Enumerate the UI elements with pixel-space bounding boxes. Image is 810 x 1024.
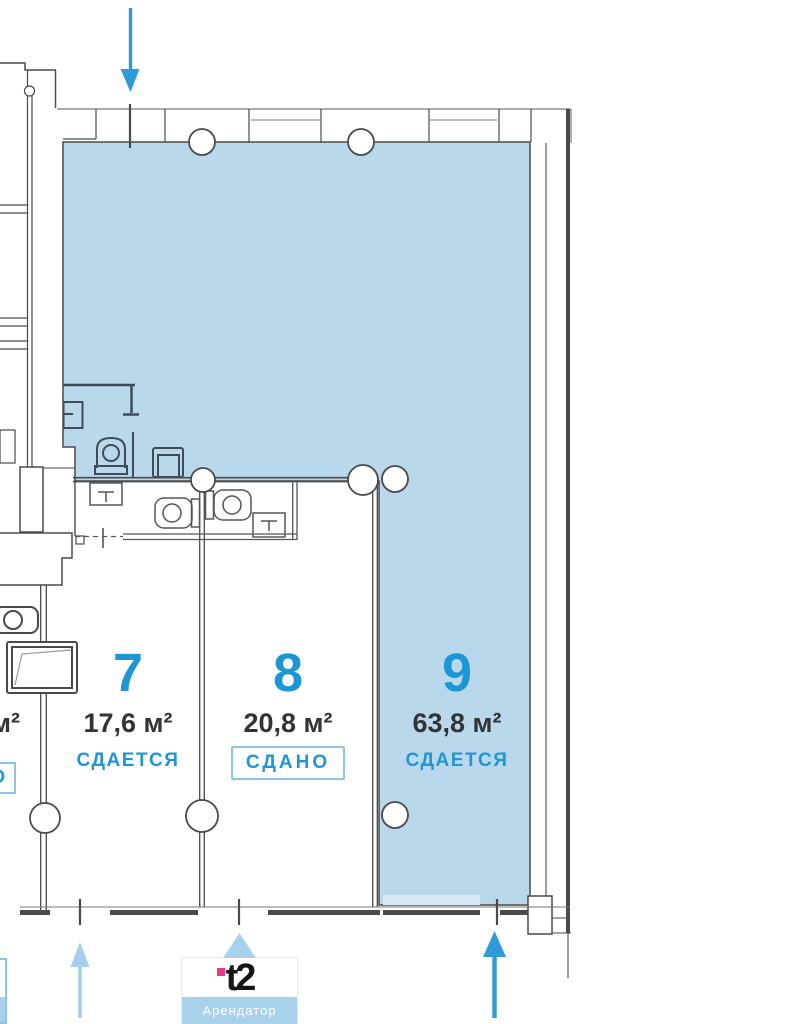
room-7-area: 17,6 м² (53, 707, 203, 739)
tenant-card[interactable]: t2 Арендатор (182, 958, 297, 1024)
tenant-card-partial-band (0, 997, 5, 1022)
tenant-card-partial (0, 958, 7, 1024)
window-sill-room9 (383, 895, 480, 905)
bathroom-lower (75, 481, 297, 548)
tenant-card-caption: Арендатор (182, 997, 297, 1024)
room-7-status: СДАЕТСЯ (53, 750, 203, 772)
room-7-label[interactable]: 7 17,6 м² СДАЕТСЯ (53, 645, 203, 772)
tenant-card-pointer (223, 933, 256, 958)
left-room-status-badge-partial: СДАНО (0, 762, 16, 794)
floorplan-canvas: 7 17,6 м² СДАЕТСЯ 8 20,8 м² СДАНО 9 63,8… (0, 0, 810, 1024)
room-9-number: 9 (382, 645, 532, 701)
tenant-logo-area: t2 (182, 958, 297, 997)
room-9-label[interactable]: 9 63,8 м² СДАЕТСЯ (382, 645, 532, 772)
room-8-number: 8 (213, 645, 363, 701)
entrance-arrow-down-icon (121, 8, 140, 92)
room-8-status-badge: СДАНО (231, 746, 345, 780)
t2-logo: t2 (226, 961, 254, 995)
entrance-arrow-up-light-icon (71, 942, 90, 1018)
room-8-label[interactable]: 8 20,8 м² СДАНО (213, 645, 363, 780)
room-9-status: СДАЕТСЯ (382, 750, 532, 772)
t2-logo-dot-icon (217, 968, 225, 976)
room-9-area: 63,8 м² (382, 707, 532, 739)
floorplan-drawing (0, 0, 810, 1024)
room-7-number: 7 (53, 645, 203, 701)
t2-logo-text: t2 (226, 957, 254, 999)
room-8-area: 20,8 м² (213, 707, 363, 739)
left-room-area-partial: м² (0, 708, 20, 739)
entrance-arrow-up-icon (483, 931, 506, 1018)
